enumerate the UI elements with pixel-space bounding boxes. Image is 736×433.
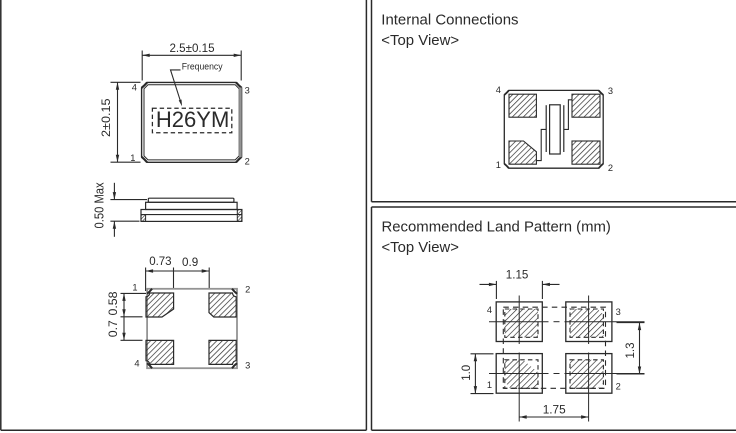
svg-text:Frequency: Frequency [182,62,223,72]
svg-text:1: 1 [132,282,137,292]
svg-text:Recommended Land Pattern (mm): Recommended Land Pattern (mm) [382,220,611,236]
svg-text:0.9: 0.9 [182,255,199,269]
svg-text:2±0.15: 2±0.15 [99,98,113,137]
svg-text:3: 3 [245,360,250,370]
svg-text:<Top View>: <Top View> [382,240,459,256]
svg-text:4: 4 [132,83,137,93]
svg-text:1.75: 1.75 [543,403,566,417]
svg-text:3: 3 [616,307,621,317]
svg-text:Internal Connections: Internal Connections [381,13,518,29]
svg-text:1.3: 1.3 [623,342,637,358]
svg-text:3: 3 [608,86,613,96]
svg-text:3: 3 [245,86,250,96]
svg-text:0.58: 0.58 [106,291,120,315]
svg-text:1: 1 [130,153,135,163]
svg-text:2.5±0.15: 2.5±0.15 [169,41,214,55]
svg-text:1: 1 [487,380,492,390]
svg-text:<Top View>: <Top View> [381,33,459,49]
svg-text:H26YM: H26YM [156,107,230,132]
svg-text:0.50 Max: 0.50 Max [93,182,107,229]
svg-text:4: 4 [487,305,492,315]
svg-text:0.73: 0.73 [149,254,172,268]
svg-text:4: 4 [496,85,501,95]
svg-text:2: 2 [608,163,613,173]
svg-text:1.0: 1.0 [459,364,473,380]
svg-text:2: 2 [616,382,621,392]
svg-text:2: 2 [245,285,250,295]
svg-text:4: 4 [134,359,139,369]
svg-text:1: 1 [496,160,501,170]
svg-text:2: 2 [245,157,250,167]
svg-text:0.7: 0.7 [106,320,120,337]
svg-text:1.15: 1.15 [506,268,529,282]
